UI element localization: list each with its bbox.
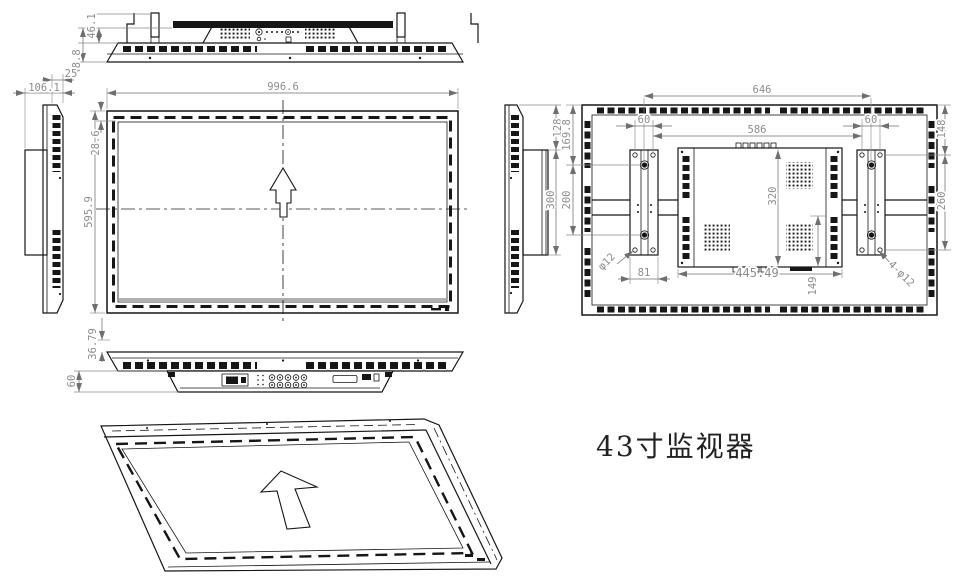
- note-hole-dia-right: 4-φ12: [886, 258, 917, 289]
- rear-view: 646 586 60 60 169.8 200 148 260 320: [561, 84, 951, 315]
- dim-rear-left-hole-pitch: 200: [561, 191, 573, 210]
- top-view: 46.1 48.8: [71, 13, 478, 75]
- dim-front-height: 595.9: [83, 196, 95, 228]
- dim-mount-length: 300: [545, 191, 557, 210]
- technical-drawing-43in-monitor: 46.1 48.8 25 106.1: [0, 0, 971, 578]
- vesa-bracket-right: [857, 150, 885, 255]
- dim-rear-box-height: 320: [767, 187, 779, 206]
- dim-side-total-depth: 106.1: [28, 82, 60, 94]
- top-connectors: [256, 29, 299, 42]
- orientation-arrow-icon: [270, 168, 296, 217]
- note-hole-dia-left: φ12: [596, 251, 618, 273]
- dim-rear-inner-span: 586: [748, 124, 767, 136]
- drawing-title: 43寸监视器: [596, 430, 756, 463]
- electronics-box: [678, 143, 842, 272]
- dim-front-top-bezel: 28.6: [90, 130, 102, 155]
- dim-bottom-panel-depth: 60: [66, 375, 78, 388]
- monitor-top-body: [107, 43, 463, 62]
- top-vent-grid-left: [220, 28, 250, 40]
- front-view: 996.6 595.9 28.6: [83, 81, 469, 324]
- dim-top-bracket-height: 46.1: [86, 13, 98, 38]
- screen-bottom-strip: [119, 298, 446, 302]
- perforation-grid-3: [786, 224, 813, 251]
- wall-mount-bar: [173, 21, 393, 28]
- dim-rear-bracket-width: 81: [638, 267, 651, 279]
- drawing-sheet: 46.1 48.8 25 106.1: [0, 0, 971, 578]
- isometric-view: [101, 419, 502, 571]
- dim-rear-left-top-offset: 169.8: [561, 119, 573, 151]
- dim-rear-right-top-offset: 148: [936, 120, 948, 139]
- dim-side-body-depth: 25: [65, 68, 78, 80]
- right-side-view: 128 300: [505, 105, 564, 313]
- dim-rear-box-bottom-offset: 149: [807, 277, 819, 296]
- top-vent-grid-right: [305, 28, 335, 40]
- dim-rear-left-hole-spacing: 60: [638, 114, 651, 126]
- left-side-view: 25 106.1: [13, 68, 77, 313]
- dim-rear-right-hole-pitch: 260: [936, 192, 948, 211]
- perforation-grid-2: [703, 224, 730, 251]
- dim-rear-box-width: 445.49: [735, 266, 778, 280]
- dim-bottom-bezel: 36.79: [87, 328, 99, 360]
- perforation-grid-1: [786, 162, 813, 189]
- connector-panel: [167, 371, 393, 392]
- dim-rear-bracket-span: 646: [753, 84, 772, 96]
- dim-rear-right-hole-spacing: 60: [865, 114, 878, 126]
- bottom-view: 36.79 60: [66, 318, 463, 392]
- dim-front-width: 996.6: [267, 81, 299, 93]
- vesa-bracket-left: [630, 150, 658, 255]
